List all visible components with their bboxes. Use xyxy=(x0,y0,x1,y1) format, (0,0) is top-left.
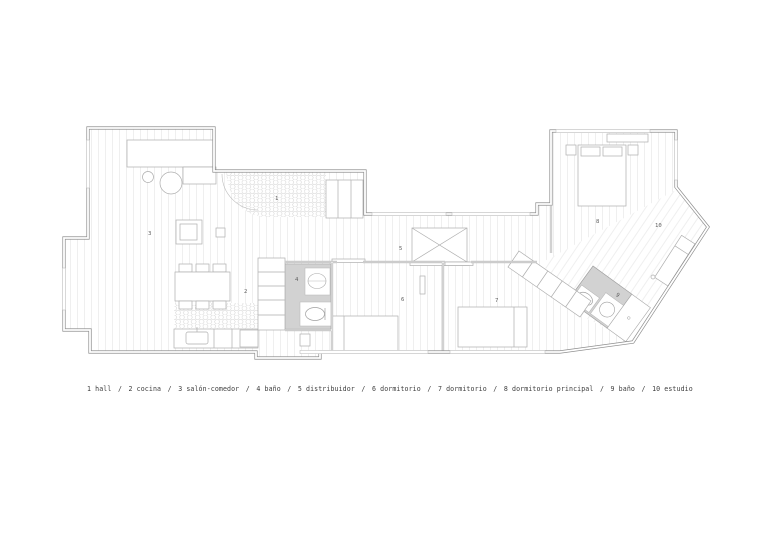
floor-plan-drawing: 1 2 3 4 5 6 7 8 9 10 xyxy=(0,0,768,543)
coffee-table xyxy=(160,172,182,194)
sofa xyxy=(127,140,215,167)
floor-plan-page: 1 2 3 4 5 6 7 8 9 10 1 hall/2 cocina/3 s… xyxy=(0,0,768,543)
sofa-chaise xyxy=(183,167,216,184)
kitchen-tall-units xyxy=(258,258,285,330)
legend: 1 hall/2 cocina/3 salón-comedor/4 baño/5… xyxy=(87,385,693,393)
bed-room6 xyxy=(332,316,398,352)
legend-item: 9 baño xyxy=(611,385,635,393)
dining-table xyxy=(175,272,230,301)
legend-separator: / xyxy=(246,385,250,393)
pillow xyxy=(603,147,622,156)
window xyxy=(452,212,530,215)
window xyxy=(300,350,428,353)
hall-closet xyxy=(326,180,363,218)
room-label-estudio: 10 xyxy=(655,223,662,229)
window xyxy=(450,350,545,353)
window xyxy=(62,268,65,310)
kitchen-appliance xyxy=(240,330,258,347)
chair xyxy=(196,301,209,309)
room-label-dormitorio-6: 6 xyxy=(401,297,404,303)
room-label-cocina: 2 xyxy=(244,289,247,295)
legend-item: 4 baño xyxy=(256,385,280,393)
side-table xyxy=(216,228,225,237)
chair xyxy=(179,301,192,309)
stool xyxy=(651,275,655,279)
tv-unit-inner xyxy=(180,224,197,240)
room-label-salon-comedor: 3 xyxy=(148,231,151,237)
room-label-distribuidor: 5 xyxy=(399,246,402,252)
radiator xyxy=(420,276,425,294)
legend-separator: / xyxy=(361,385,365,393)
room-label-dormitorio-7: 7 xyxy=(495,298,498,304)
legend-separator: / xyxy=(427,385,431,393)
legend-item: 7 dormitorio xyxy=(438,385,487,393)
window xyxy=(674,140,677,180)
room-label-hall: 1 xyxy=(275,196,278,202)
chair xyxy=(213,264,226,272)
bed-room7 xyxy=(458,307,527,347)
legend-separator: / xyxy=(168,385,172,393)
washer xyxy=(300,334,310,346)
window xyxy=(556,129,650,132)
nightstand xyxy=(566,145,576,155)
window xyxy=(372,212,446,215)
legend-item: 5 distribuidor xyxy=(298,385,355,393)
bedroom8-closet xyxy=(607,134,648,142)
kitchen-sink xyxy=(186,332,208,344)
nightstand xyxy=(628,145,638,155)
legend-separator: / xyxy=(287,385,291,393)
legend-item: 10 estudio xyxy=(652,385,693,393)
legend-separator: / xyxy=(600,385,604,393)
legend-separator: / xyxy=(118,385,122,393)
window xyxy=(86,140,89,188)
side-table-small xyxy=(143,172,154,183)
legend-item: 8 dormitorio principal xyxy=(504,385,594,393)
bath4-toilet xyxy=(306,308,325,321)
legend-item: 1 hall xyxy=(87,385,111,393)
legend-item: 2 cocina xyxy=(129,385,162,393)
sliding-door-rail xyxy=(445,262,473,266)
legend-item: 3 salón-comedor xyxy=(178,385,239,393)
chair xyxy=(213,301,226,309)
legend-separator: / xyxy=(493,385,497,393)
chair xyxy=(196,264,209,272)
legend-item: 6 dormitorio xyxy=(372,385,421,393)
chair xyxy=(179,264,192,272)
pillow xyxy=(581,147,600,156)
legend-separator: / xyxy=(641,385,645,393)
